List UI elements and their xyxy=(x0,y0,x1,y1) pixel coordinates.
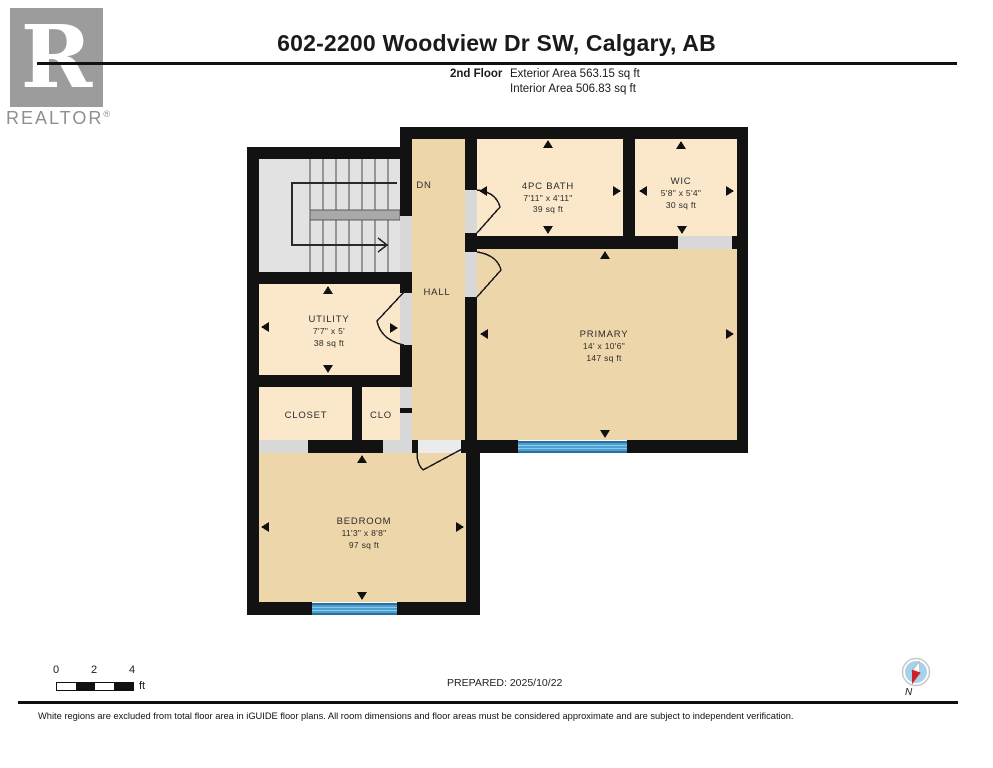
label-bedroom-dims: 11'3" x 8'8" xyxy=(342,528,387,538)
scale-tick-4: 4 xyxy=(122,664,142,676)
bedroom-doorway-floor xyxy=(418,440,461,453)
label-utility-area: 38 sq ft xyxy=(314,338,345,348)
window-bedroom xyxy=(312,603,397,615)
floorplan-page: R REALTOR® 602-2200 Woodview Dr SW, Calg… xyxy=(0,0,993,768)
label-primary-dims: 14' x 10'6" xyxy=(583,341,625,351)
floorplan-drawing: DN HALL 4PC BATH 7'11" x 4'11" 39 sq ft … xyxy=(0,0,993,650)
label-bedroom-name: BEDROOM xyxy=(337,516,392,527)
compass-north-label: N xyxy=(905,687,912,698)
label-primary-name: PRIMARY xyxy=(580,329,629,340)
scale-tick-2: 2 xyxy=(84,664,104,676)
label-clo: CLO xyxy=(370,410,392,421)
scale-unit: ft xyxy=(139,680,145,692)
label-closet: CLOSET xyxy=(285,410,328,421)
compass-icon xyxy=(898,654,938,694)
label-bath-name: 4PC BATH xyxy=(522,181,574,192)
scale-bar xyxy=(56,682,134,691)
disclaimer-text: White regions are excluded from total fl… xyxy=(38,711,794,721)
scale-tick-0: 0 xyxy=(46,664,66,676)
stair-landing xyxy=(310,210,400,220)
label-bath-area: 39 sq ft xyxy=(533,204,564,214)
footer-rule xyxy=(18,701,958,704)
label-hall: HALL xyxy=(424,287,451,298)
label-utility-dims: 7'7" x 5' xyxy=(313,326,345,336)
label-bedroom-area: 97 sq ft xyxy=(349,540,380,550)
prepared-date: PREPARED: 2025/10/22 xyxy=(447,677,562,689)
label-utility-name: UTILITY xyxy=(309,314,350,325)
label-bath-dims: 7'11" x 4'11" xyxy=(523,193,572,203)
label-dn: DN xyxy=(416,180,431,191)
label-wic-dims: 5'8" x 5'4" xyxy=(661,188,701,198)
header-rule xyxy=(37,62,957,65)
label-wic-name: WIC xyxy=(671,176,692,187)
window-primary xyxy=(518,441,627,453)
label-wic-area: 30 sq ft xyxy=(666,200,697,210)
label-primary-area: 147 sq ft xyxy=(586,353,622,363)
